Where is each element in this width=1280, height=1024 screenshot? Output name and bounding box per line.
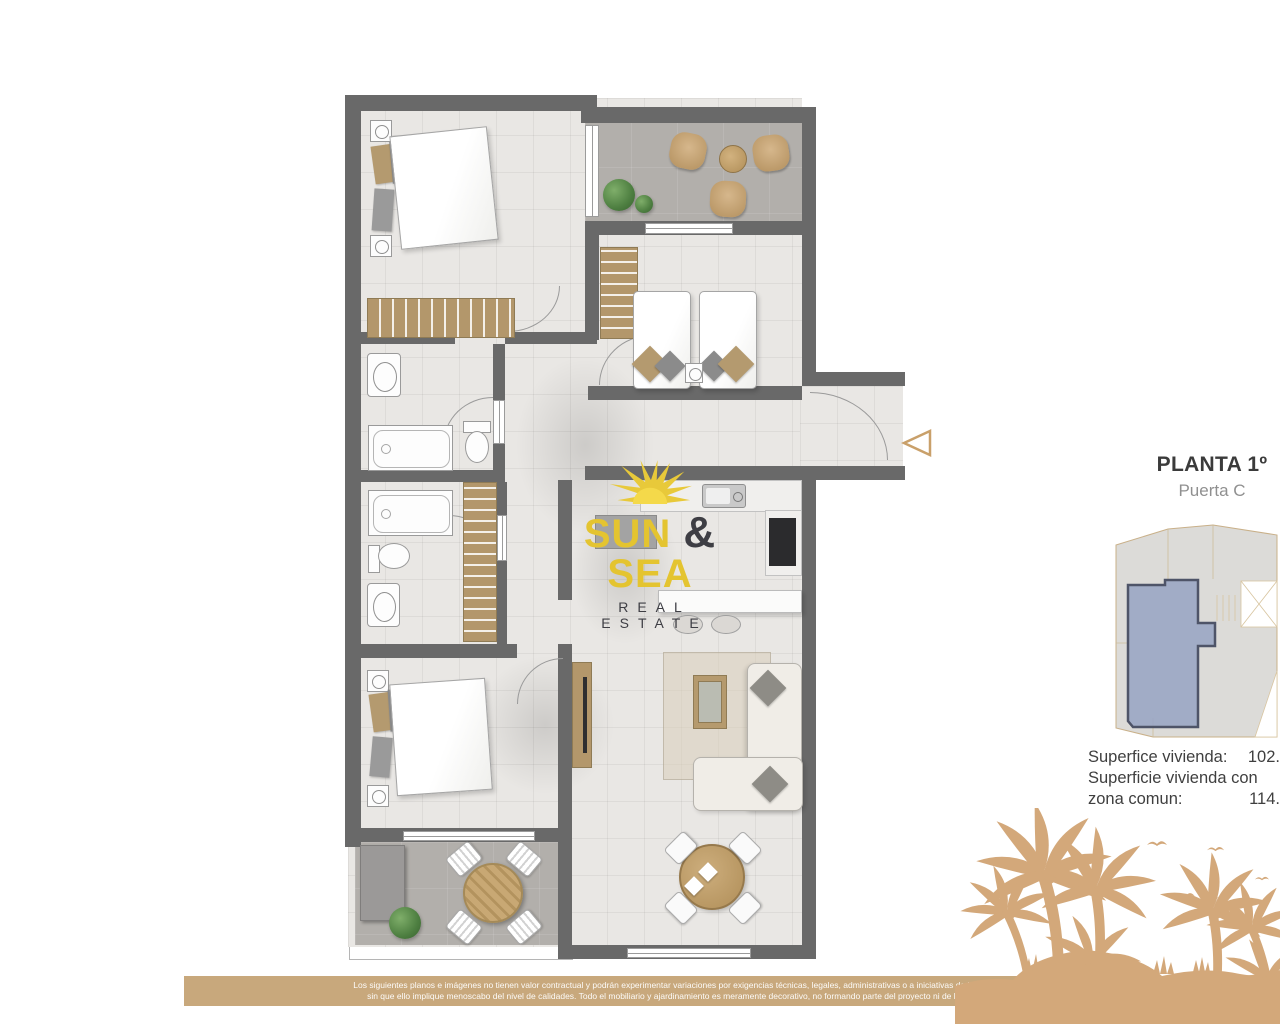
surface-label: Superfice vivienda: xyxy=(1088,747,1227,768)
logo-ampersand: & xyxy=(683,508,716,557)
wall xyxy=(345,644,517,658)
wall xyxy=(345,95,597,111)
toilet-bowl xyxy=(378,543,410,569)
bathtub xyxy=(368,490,453,536)
double-bed xyxy=(389,678,493,796)
coffee-table xyxy=(693,675,727,729)
palm-beach-art xyxy=(955,808,1280,1024)
terrace-table xyxy=(463,863,523,923)
key-plan xyxy=(1113,523,1280,741)
terrace-chair xyxy=(709,180,747,218)
wall xyxy=(505,332,597,344)
page-title: PLANTA 1º xyxy=(1132,453,1280,477)
double-bed xyxy=(389,126,498,250)
washbasin xyxy=(367,353,401,397)
window xyxy=(627,948,751,958)
page-subtitle: Puerta C xyxy=(1132,481,1280,501)
lamp-icon xyxy=(689,368,702,381)
table-glass xyxy=(698,681,722,723)
toilet-bowl xyxy=(465,431,489,463)
bathroom-door-gap xyxy=(493,400,505,444)
surface-label: Superficie vivienda con xyxy=(1088,768,1258,789)
plan-title-block: PLANTA 1º Puerta C xyxy=(1132,453,1280,501)
plant xyxy=(389,907,421,939)
bathtub xyxy=(368,425,453,471)
wall xyxy=(802,107,816,372)
lamp-icon xyxy=(372,790,386,804)
surface-row: zona comun: 114. xyxy=(1088,789,1280,810)
wall xyxy=(802,372,905,386)
surface-table: Superfice vivienda: 102. Superficie vivi… xyxy=(1088,747,1280,810)
nightstand xyxy=(370,235,392,257)
washbasin xyxy=(367,583,400,627)
sun-icon xyxy=(608,458,692,508)
pillow xyxy=(369,736,392,778)
wall xyxy=(588,386,802,400)
bathroom-door-gap xyxy=(497,515,507,561)
lamp-icon xyxy=(375,240,389,254)
pillow xyxy=(372,188,395,231)
logo-word1: SUN xyxy=(584,512,671,556)
lamp-icon xyxy=(372,675,386,689)
wall xyxy=(345,470,505,482)
logo-wordmark: SUN & SEA xyxy=(553,513,747,594)
nightstand xyxy=(367,670,389,692)
wall xyxy=(802,466,905,480)
tv-screen xyxy=(583,677,587,753)
surface-value: 102. xyxy=(1248,747,1280,768)
basin-bowl xyxy=(373,592,396,622)
cooktop xyxy=(769,518,796,566)
floorplan-sheet: SUN & SEA REAL ESTATE PLANTA 1º Puerta C… xyxy=(0,0,1280,1024)
wardrobe xyxy=(367,298,515,338)
window xyxy=(645,223,733,234)
wall xyxy=(802,480,816,959)
plant xyxy=(603,179,635,211)
basin-bowl xyxy=(373,362,397,392)
window xyxy=(403,831,535,841)
logo-tagline: REAL ESTATE xyxy=(553,599,747,631)
hall-wardrobe xyxy=(463,482,497,642)
window xyxy=(585,125,599,217)
sun-and-sea-logo: SUN & SEA REAL ESTATE xyxy=(553,458,747,631)
wall xyxy=(581,107,816,123)
surface-row: Superfice vivienda: 102. xyxy=(1088,747,1280,768)
lamp-icon xyxy=(375,125,389,139)
logo-word2: SEA xyxy=(607,552,692,596)
surface-label: zona comun: xyxy=(1088,789,1182,810)
entrance-arrow xyxy=(901,428,933,458)
terrace-side-table xyxy=(719,145,747,173)
wall xyxy=(585,235,599,340)
wall xyxy=(497,482,507,644)
tv-unit xyxy=(572,662,592,768)
nightstand xyxy=(367,785,389,807)
surface-value: 114. xyxy=(1249,789,1280,810)
surface-row: Superficie vivienda con xyxy=(1088,768,1280,789)
drain-icon xyxy=(381,444,391,454)
drain-icon xyxy=(381,509,391,519)
plant xyxy=(635,195,653,213)
nightstand xyxy=(685,363,703,383)
